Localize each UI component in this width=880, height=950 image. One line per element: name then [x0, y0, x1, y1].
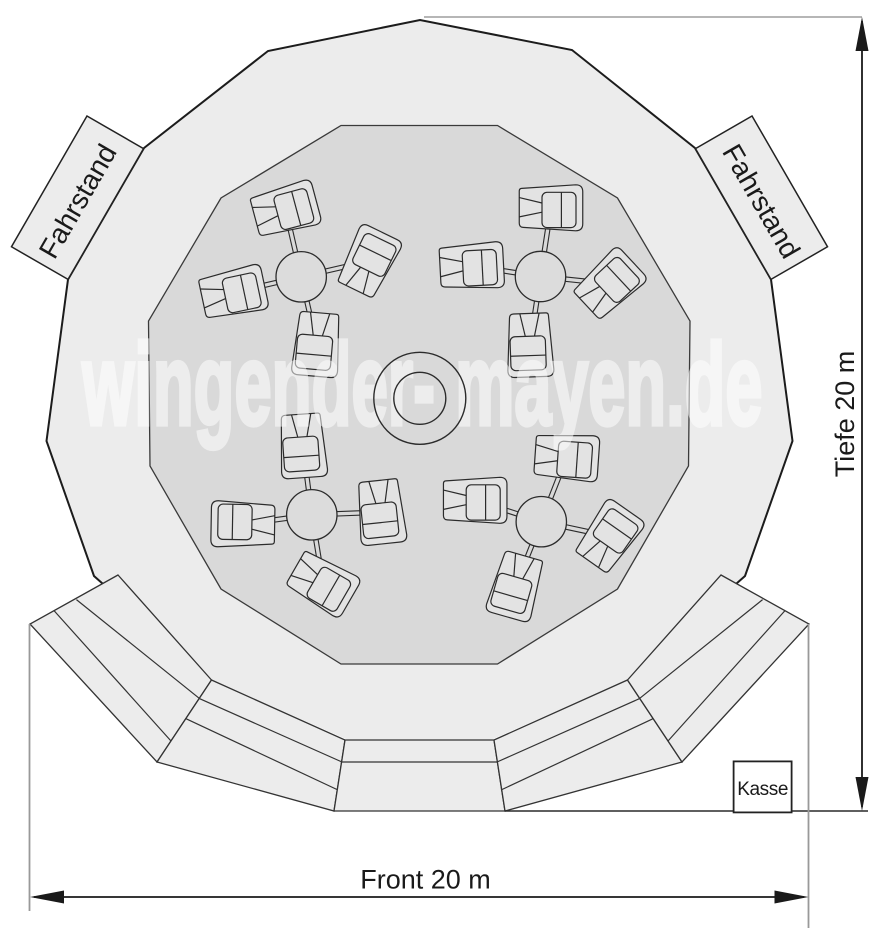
svg-text:winge: winge	[82, 319, 272, 450]
svg-text:Front 20 m: Front 20 m	[360, 865, 491, 895]
svg-text:n.de: n.de	[625, 319, 762, 450]
svg-text:Tiefe 20 m: Tiefe 20 m	[830, 351, 860, 478]
svg-text:nder-: nder-	[272, 319, 435, 450]
svg-text:maye: maye	[455, 319, 625, 450]
svg-text:Kasse: Kasse	[737, 779, 788, 800]
